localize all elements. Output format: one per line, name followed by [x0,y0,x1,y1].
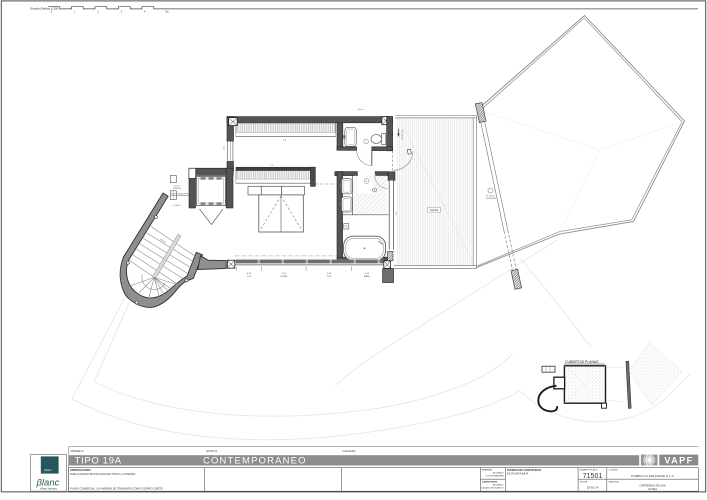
svg-text:SALIDA TZA.: SALIDA TZA. [401,129,404,140]
svg-text:PARCELA: PARCELA [609,480,620,483]
svg-text:CARPINTERIA:: CARPINTERIA: [482,480,498,483]
svg-text:71501: 71501 [583,473,603,480]
svg-text:NUMERO PLANO: NUMERO PLANO [580,469,598,472]
svg-text:CALIDAD: CALIDAD [343,449,357,453]
svg-text:TARIMA: TARIMA [430,209,439,212]
svg-text:FECHA: FECHA [580,480,588,483]
svg-text:MODELO: MODELO [71,449,85,453]
svg-text:CHIMENEA: CHIMENEA [485,197,496,200]
svg-text:BAÑO: BAÑO [364,275,370,278]
svg-text:Altea homes: Altea homes [40,487,57,491]
svg-text:CONTEMPORANEO: CONTEMPORANEO [203,456,307,467]
svg-text:ALUMINIO: ALUMINIO [493,483,504,486]
svg-text:ALUMINIO: ALUMINIO [493,472,504,475]
svg-text:PORTON:: PORTON: [482,470,492,472]
svg-text:OBSERVACIONES: OBSERVACIONES [70,469,91,472]
svg-text:ESTILO: ESTILO [207,449,218,453]
svg-text:EN PLANTA BAJA: EN PLANTA BAJA [507,472,529,476]
svg-text:+1.90 m: +1.90 m [173,205,181,207]
svg-text:TIPO 19A: TIPO 19A [75,456,122,467]
svg-text:V-02: V-02 [327,276,332,278]
svg-text:CUBIERTAS PLANAS: CUBIERTAS PLANAS [565,360,599,364]
svg-text:5m: 5m [165,10,168,13]
svg-text:1.60 m: 1.60 m [357,109,364,111]
svg-text:COLOR MADERA: COLOR MADERA [486,475,504,478]
svg-text:V-01: V-01 [247,276,252,278]
svg-text:βlanc: βlanc [44,468,53,472]
svg-text:DORM.: DORM. [280,276,288,278]
svg-text:Escala Gráfica 1/100: Escala Gráfica 1/100 [31,7,59,11]
svg-text:SUPERFICIES CONSTRUIDAS: SUPERFICIES CONSTRUIDAS [507,469,542,472]
svg-text:LACADO EN BLANCO: LACADO EN BLANCO [481,486,504,489]
svg-text:PERCH.: PERCH. [174,188,183,190]
svg-text:CLIENTE: CLIENTE [609,470,619,472]
svg-text:ALTEA: ALTEA [648,487,657,491]
svg-text:18-01-24: 18-01-24 [586,486,598,490]
svg-text:VAPF: VAPF [664,455,693,465]
svg-text:SUELO RADIANTE POR AGUA EN TOD: SUELO RADIANTE POR AGUA EN TODA LA VIVIE… [70,472,136,476]
svg-text:PLANO COMERCIAL. LA VIVIENDA S: PLANO COMERCIAL. LA VIVIENDA SE TRANSMIT… [70,486,163,490]
svg-text:PUEBLO LA FELICIDAD S.L.U: PUEBLO LA FELICIDAD S.L.U [631,474,674,478]
